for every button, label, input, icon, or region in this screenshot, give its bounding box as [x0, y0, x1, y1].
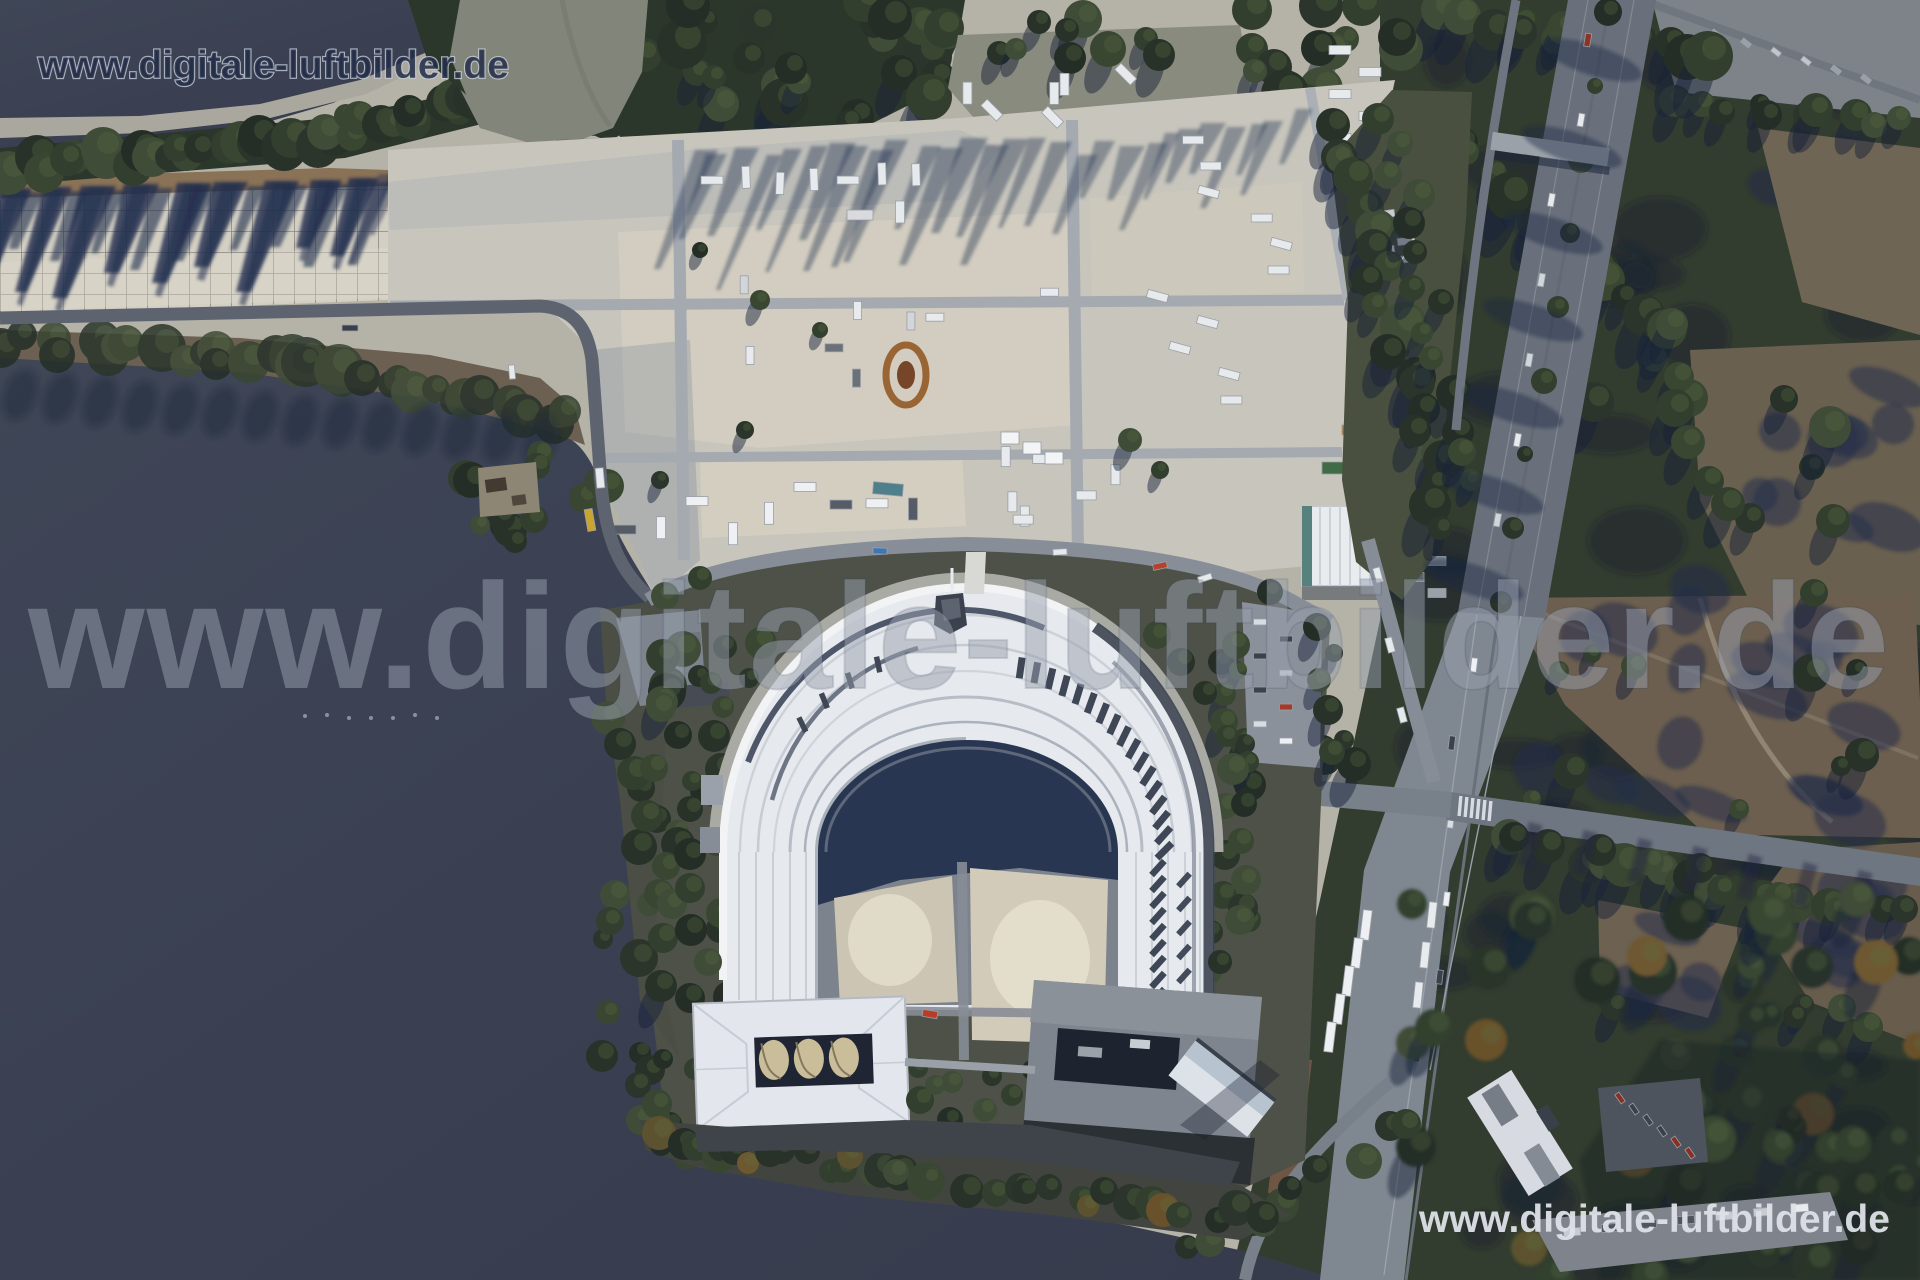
svg-text:www.digitale-luftbilder.de: www.digitale-luftbilder.de	[37, 44, 509, 87]
svg-text:www.digitale-luftbilder.de: www.digitale-luftbilder.de	[27, 552, 1891, 720]
svg-text:www.digitale-luftbilder.de: www.digitale-luftbilder.de	[1418, 1198, 1890, 1241]
